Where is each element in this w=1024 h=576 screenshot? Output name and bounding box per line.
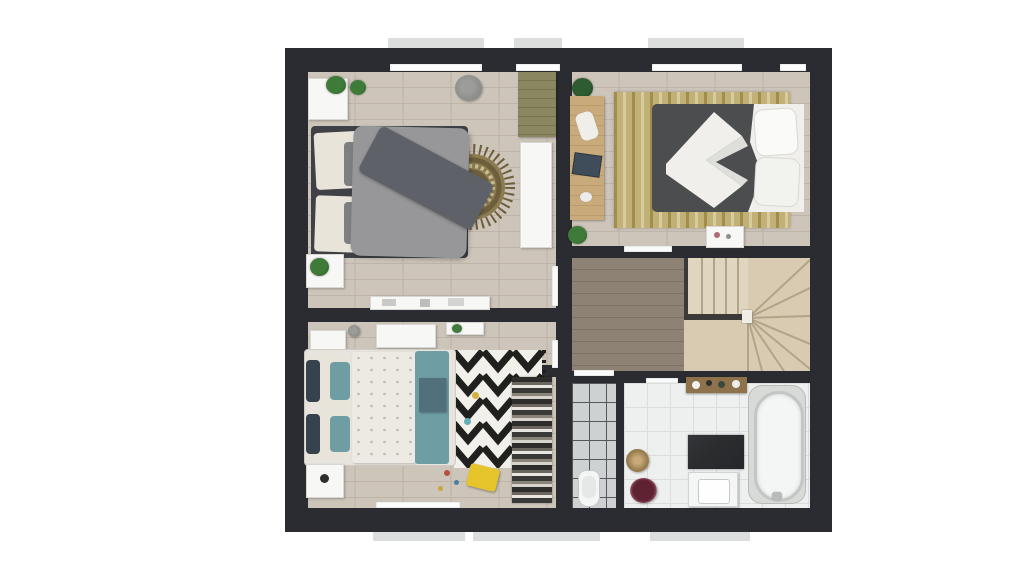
plant [310,258,329,276]
toy [444,470,450,476]
bed-top-right [652,102,806,214]
partition-wall-bedroom-hall [572,246,810,258]
toy [472,392,479,399]
door-bedroom-bottom-left [552,340,558,368]
window [376,502,460,508]
door-bedroom-top-left [552,266,558,306]
window [652,64,742,71]
stair-railing [684,258,688,320]
partition-wall-bedrooms-left [308,308,556,322]
sideboard-item [382,299,396,306]
toy [464,418,471,425]
accent-pillow [306,360,320,402]
toilet-seat [582,476,596,498]
window [516,64,560,71]
window [390,64,482,71]
stair-railing [688,314,744,320]
sideboard-item [448,298,464,306]
books [573,153,602,176]
roof-tab [514,38,562,48]
plant [572,78,593,98]
desk-item [580,192,592,202]
toy [454,480,459,485]
roof-tab [648,38,744,48]
roof-tab [373,532,465,541]
door-shower-room [574,370,614,376]
plant [326,76,346,94]
sink-bowl [698,479,730,504]
accent-pillow [330,362,350,400]
door-bedroom-top-right [624,246,672,252]
accent-pillow [306,414,320,454]
plant [452,324,462,333]
accent-pillow [330,416,350,452]
tub-faucet [772,492,782,500]
tray-item [726,234,731,239]
floor-plan-scene [0,0,1024,576]
toiletry [718,381,725,388]
dresser [376,324,436,348]
toiletry [692,381,700,389]
wardrobe [520,142,552,248]
stair-newel-post [742,310,752,323]
plant [350,80,366,95]
decor-pot [320,474,329,483]
folded-blanket [419,378,446,412]
window [780,64,806,71]
shower-glass-divider [616,383,624,508]
sideboard-item [420,299,430,307]
roof-tab [473,532,600,541]
toiletry [706,380,712,386]
door-bathroom [646,378,678,383]
breakfast-tray [706,226,744,248]
small-decor [348,325,360,337]
roof-tab [388,38,484,48]
open-closet-clothes [512,377,552,503]
pouf-ottoman [455,75,482,101]
tray-item [714,232,720,238]
bathtub-basin [754,391,804,502]
roof-tab [650,532,750,541]
jute-basket [626,449,649,472]
towel-bowl [630,478,657,503]
plant [568,226,587,244]
dark-stone-panel [688,435,744,469]
duvet-dotted [352,352,416,463]
dresser-olive [518,72,556,137]
toy [438,486,443,491]
toiletry [732,380,740,388]
